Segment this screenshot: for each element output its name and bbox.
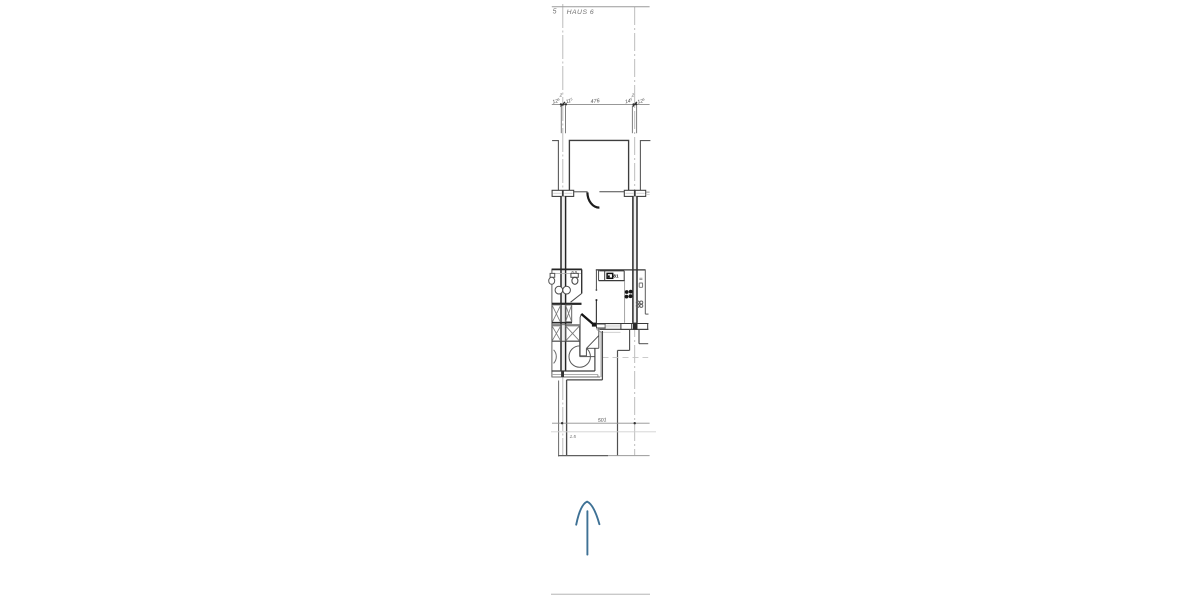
svg-text:2: 2 bbox=[559, 92, 563, 97]
svg-text:81: 81 bbox=[613, 273, 619, 278]
svg-text:1.5: 1.5 bbox=[570, 434, 577, 439]
svg-text:2: 2 bbox=[631, 92, 635, 97]
svg-text:501: 501 bbox=[598, 417, 607, 424]
svg-text:HAUS 6: HAUS 6 bbox=[567, 9, 595, 16]
svg-text:5: 5 bbox=[553, 9, 557, 16]
svg-text:476: 476 bbox=[590, 98, 600, 105]
